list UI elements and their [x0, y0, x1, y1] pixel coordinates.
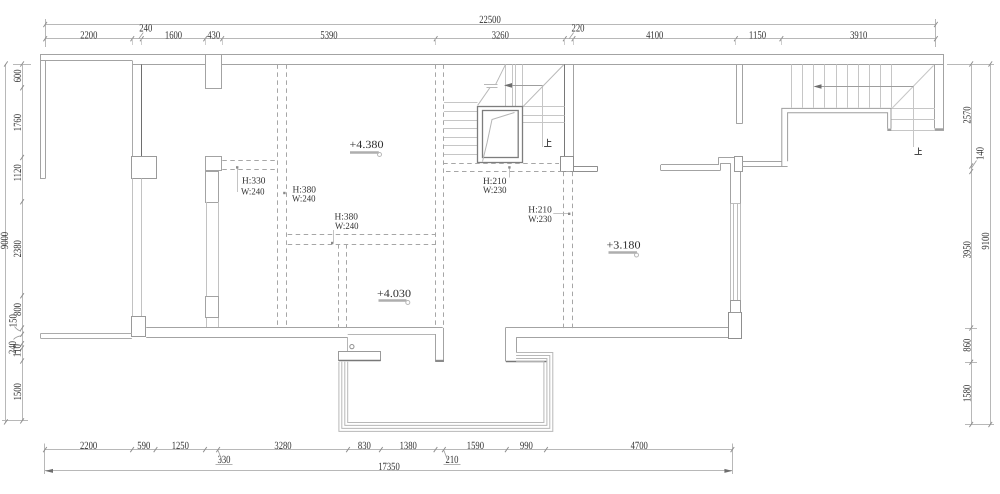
svg-text:590: 590	[137, 440, 150, 452]
svg-text:830: 830	[358, 440, 371, 452]
svg-text:600: 600	[12, 69, 24, 82]
svg-text:140: 140	[975, 147, 987, 160]
svg-text:3280: 3280	[274, 440, 292, 452]
svg-text:17350: 17350	[378, 461, 400, 473]
svg-text:+4.030: +4.030	[377, 288, 412, 300]
svg-text:2200: 2200	[80, 30, 98, 42]
svg-text:1380: 1380	[400, 440, 418, 452]
svg-text:9100: 9100	[980, 232, 992, 250]
svg-text:5390: 5390	[320, 30, 338, 42]
svg-text:H:210: H:210	[528, 205, 552, 215]
svg-text:3910: 3910	[850, 30, 868, 42]
svg-text:430: 430	[207, 30, 220, 42]
svg-text:1760: 1760	[12, 114, 24, 132]
svg-text:W:240: W:240	[241, 188, 265, 198]
svg-text:22500: 22500	[479, 14, 501, 26]
svg-text:1500: 1500	[12, 383, 24, 401]
svg-text:240: 240	[139, 23, 152, 35]
svg-text:860: 860	[961, 338, 973, 351]
svg-text:+3.180: +3.180	[607, 240, 642, 252]
svg-text:+4.380: +4.380	[350, 139, 385, 151]
svg-text:800: 800	[12, 303, 24, 316]
svg-text:2380: 2380	[12, 240, 24, 258]
svg-text:H:330: H:330	[242, 177, 266, 187]
svg-text:1150: 1150	[749, 30, 767, 42]
svg-text:1590: 1590	[467, 440, 485, 452]
svg-text:4700: 4700	[631, 440, 649, 452]
svg-text:2200: 2200	[80, 440, 98, 452]
svg-text:W:240: W:240	[292, 195, 316, 205]
svg-text:150: 150	[8, 314, 20, 327]
svg-text:W:240: W:240	[335, 222, 359, 232]
svg-text:4100: 4100	[646, 30, 664, 42]
svg-text:1580: 1580	[961, 384, 973, 402]
svg-text:9000: 9000	[0, 232, 11, 250]
svg-text:2570: 2570	[961, 106, 973, 124]
svg-text:3950: 3950	[961, 241, 973, 259]
svg-text:3260: 3260	[492, 30, 510, 42]
svg-text:1120: 1120	[12, 164, 24, 182]
svg-text:990: 990	[520, 440, 533, 452]
svg-text:W:230: W:230	[528, 215, 552, 225]
svg-text:W:230: W:230	[483, 186, 507, 196]
svg-text:1250: 1250	[172, 440, 190, 452]
svg-text:1600: 1600	[165, 30, 183, 42]
